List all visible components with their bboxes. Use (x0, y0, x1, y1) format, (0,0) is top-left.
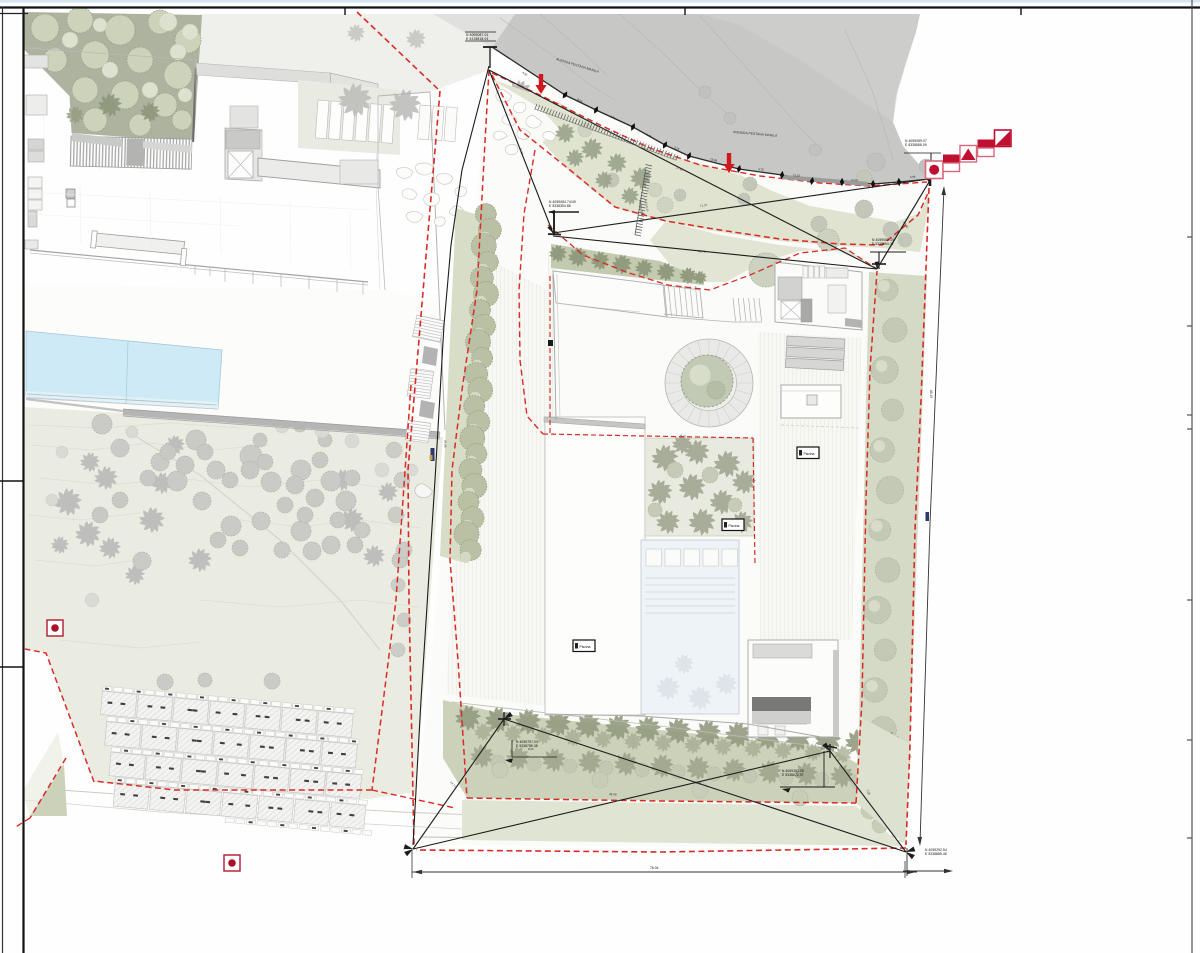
svg-text:E 5338785.38: E 5338785.38 (516, 744, 538, 748)
svg-text:11.03: 11.03 (793, 173, 801, 178)
svg-text:E 5338885.48: E 5338885.48 (925, 852, 947, 856)
svg-text:E 5338822.97: E 5338822.97 (782, 773, 804, 777)
svg-text:Piscina: Piscina (804, 452, 815, 456)
svg-text:75.46: 75.46 (443, 440, 448, 448)
svg-text:55.79: 55.79 (698, 249, 706, 254)
svg-text:E 5338888.09: E 5338888.09 (905, 143, 927, 147)
svg-text:E 5338354.88: E 5338354.88 (549, 204, 571, 208)
svg-text:Piscina: Piscina (729, 524, 740, 528)
svg-text:Piscina: Piscina (580, 645, 591, 649)
svg-text:4.76: 4.76 (758, 167, 764, 172)
svg-text:48.98: 48.98 (609, 792, 617, 797)
svg-text:E 5318818.03: E 5318818.03 (466, 37, 488, 41)
svg-text:8.00: 8.00 (528, 747, 534, 751)
svg-text:76.04: 76.04 (650, 866, 659, 870)
svg-text:4.96: 4.96 (910, 175, 916, 179)
svg-text:E 5338854.72: E 5338854.72 (872, 242, 894, 246)
svg-text:98.10: 98.10 (929, 390, 933, 398)
svg-text:9.675: 9.675 (851, 178, 859, 182)
